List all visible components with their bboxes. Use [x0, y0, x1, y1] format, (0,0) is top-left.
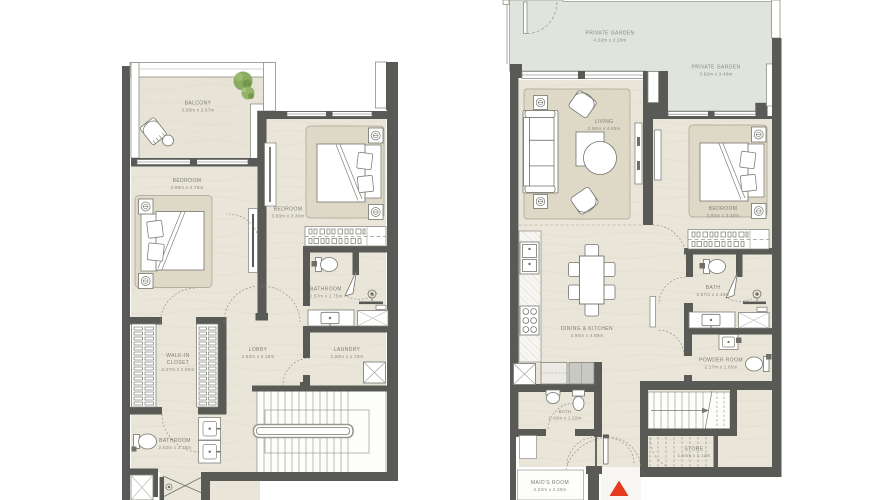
svg-text:CLOSET: CLOSET	[167, 360, 189, 366]
svg-text:PRIVATE GARDEN: PRIVATE GARDEN	[691, 65, 740, 71]
svg-text:POWDER ROOM: POWDER ROOM	[699, 358, 743, 364]
svg-text:3.80m x 3.40m: 3.80m x 3.40m	[707, 213, 740, 218]
svg-text:WALK-IN: WALK-IN	[166, 353, 189, 359]
svg-text:LIVING: LIVING	[595, 119, 614, 125]
svg-text:3.82m x 3.40m: 3.82m x 3.40m	[700, 72, 733, 77]
svg-text:BATHROOM: BATHROOM	[310, 287, 342, 293]
svg-text:4.22m x 2.20m: 4.22m x 2.20m	[594, 38, 627, 43]
svg-text:1.42m x 1.22m: 1.42m x 1.22m	[549, 416, 582, 421]
svg-text:DINING & KITCHEN: DINING & KITCHEN	[561, 326, 613, 332]
svg-text:BEDROOM: BEDROOM	[709, 206, 738, 212]
svg-text:3.95m x 4.75m: 3.95m x 4.75m	[171, 185, 204, 190]
svg-text:LOBBY: LOBBY	[249, 347, 268, 353]
svg-text:BEDROOM: BEDROOM	[173, 178, 202, 184]
svg-text:MAID'S ROOM: MAID'S ROOM	[531, 480, 569, 486]
svg-text:LAUNDRY: LAUNDRY	[334, 347, 361, 353]
svg-text:2.50m x 1.70m: 2.50m x 1.70m	[331, 354, 364, 359]
svg-text:STORE: STORE	[684, 447, 703, 453]
svg-text:BATHROOM: BATHROOM	[159, 438, 191, 444]
svg-text:BALCONY: BALCONY	[185, 101, 212, 107]
svg-text:3.90m x 4.90m: 3.90m x 4.90m	[571, 333, 604, 338]
svg-text:1.64m x 1.12m: 1.64m x 1.12m	[678, 453, 711, 458]
svg-text:2.52m x 2.79m: 2.52m x 2.79m	[159, 445, 192, 450]
svg-text:3.60m x 3.40m: 3.60m x 3.40m	[272, 214, 305, 219]
svg-text:BATH: BATH	[559, 409, 572, 414]
svg-text:BEDROOM: BEDROOM	[274, 207, 303, 213]
svg-text:2.22m x 2.20m: 2.22m x 2.20m	[534, 487, 567, 492]
svg-text:2.47m x 2.80m: 2.47m x 2.80m	[162, 367, 195, 372]
svg-text:BATH: BATH	[706, 285, 721, 291]
svg-text:2.17m x 1.65m: 2.17m x 1.65m	[705, 365, 738, 370]
svg-text:3.50m x 2.57m: 3.50m x 2.57m	[182, 108, 215, 113]
svg-text:2.63m x 2.16m: 2.63m x 2.16m	[242, 354, 275, 359]
svg-text:3.90m x 4.65m: 3.90m x 4.65m	[588, 126, 621, 131]
svg-text:2.57m x 2.40m: 2.57m x 2.40m	[697, 292, 730, 297]
svg-text:PRIVATE GARDEN: PRIVATE GARDEN	[585, 31, 634, 37]
svg-text:2.57m x 1.75m: 2.57m x 1.75m	[310, 294, 343, 299]
